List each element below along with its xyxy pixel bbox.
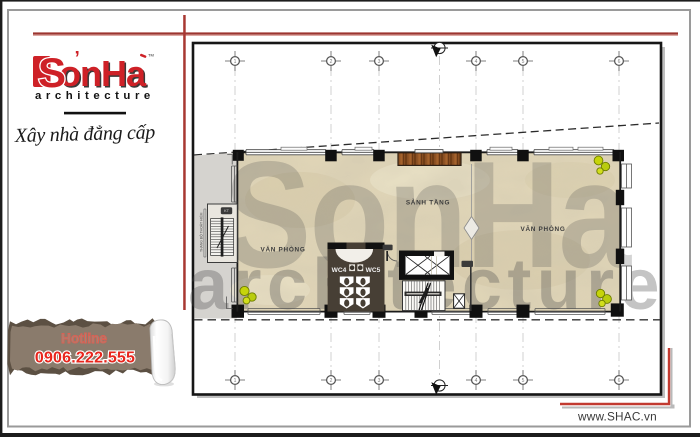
svg-text:WC4: WC4 [332,267,347,274]
svg-text:WC5: WC5 [366,267,381,274]
svg-text:THANG BỘ THOÁT HIỂM: THANG BỘ THOÁT HIỂM [199,212,204,252]
svg-text:ʼ: ʼ [75,49,80,70]
svg-text:4: 4 [475,378,478,384]
svg-text:4: 4 [475,59,478,65]
svg-text:www.SHAC.vn: www.SHAC.vn [577,410,657,424]
svg-text:5: 5 [522,59,525,65]
svg-text:2: 2 [330,59,333,65]
svg-text:1: 1 [234,378,237,384]
svg-text:1: 1 [234,59,237,65]
svg-text:5: 5 [522,378,525,384]
svg-text:6: 6 [618,59,621,65]
svg-text:Xây nhà đẳng cấp: Xây nhà đẳng cấp [14,121,156,147]
svg-text:6: 6 [618,378,621,384]
svg-text:Hotline: Hotline [61,331,107,346]
svg-text:S: S [38,49,66,96]
svg-text:VĂN PHÒNG: VĂN PHÒNG [520,224,565,233]
svg-text:0906.222.555: 0906.222.555 [35,350,135,367]
svg-text:KT: KT [224,208,230,213]
svg-text:onHa: onHa [59,53,147,94]
svg-text:architecture: architecture [35,90,155,102]
svg-text:2: 2 [330,378,333,384]
svg-text:3: 3 [378,59,381,65]
svg-text:3: 3 [378,378,381,384]
svg-text:TM: TM [148,53,154,58]
svg-text:VĂN PHÒNG: VĂN PHÒNG [260,245,305,254]
